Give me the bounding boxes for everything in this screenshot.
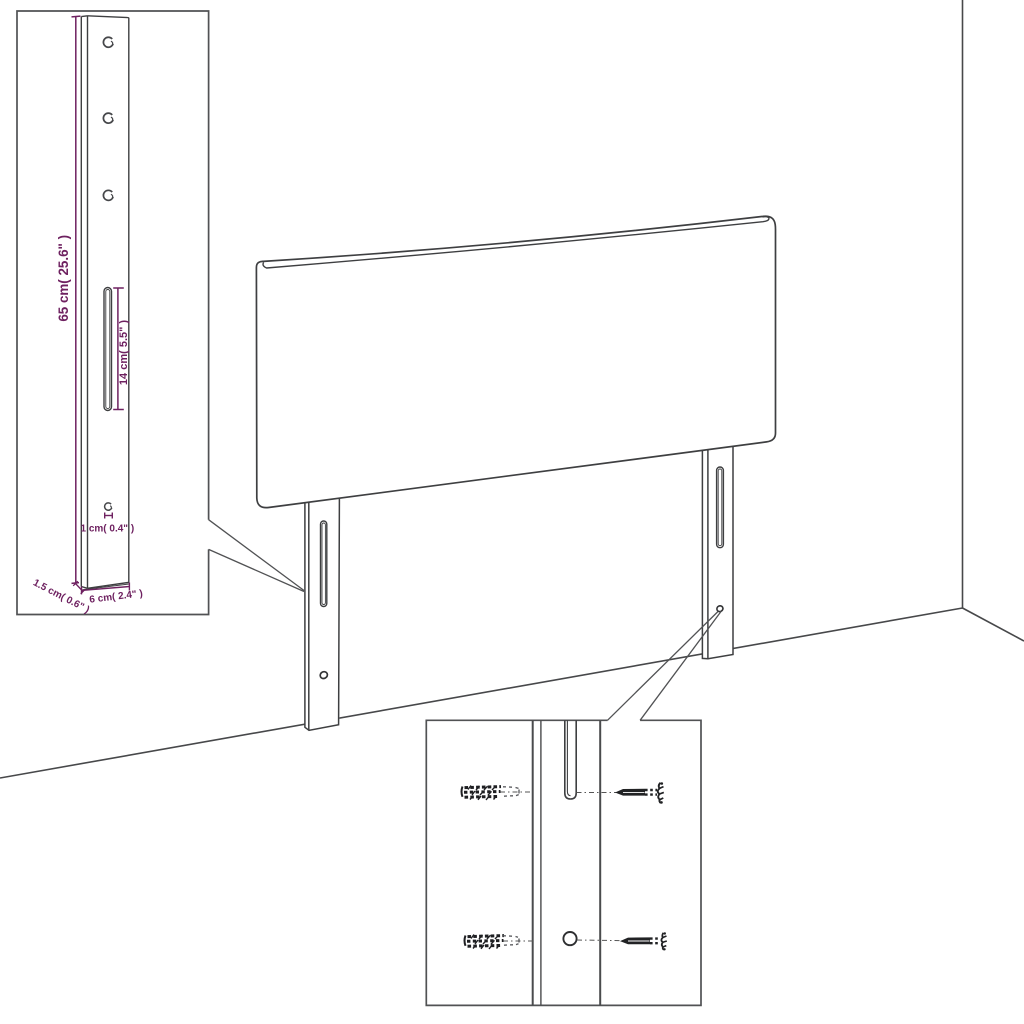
svg-text:65 cm( 25.6" ): 65 cm( 25.6" ) — [56, 235, 71, 322]
svg-text:14 cm( 5.5" ): 14 cm( 5.5" ) — [118, 320, 130, 385]
svg-text:1 cm( 0.4" ): 1 cm( 0.4" ) — [81, 524, 135, 535]
